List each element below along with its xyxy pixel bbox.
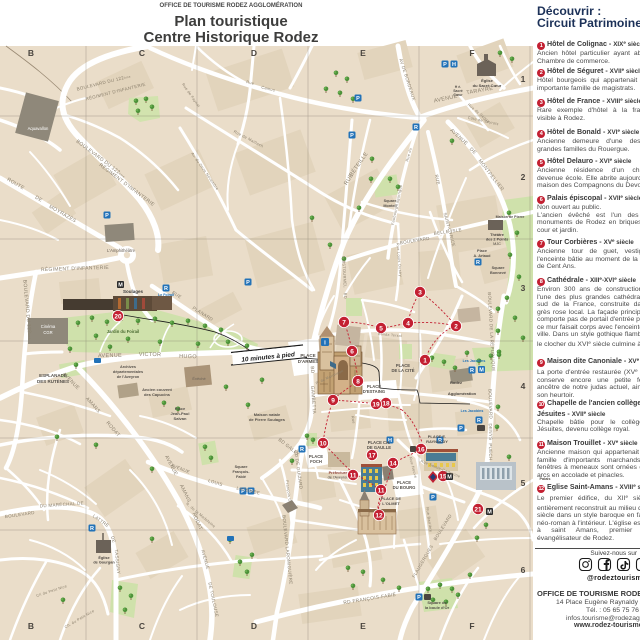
svg-text:A. Artaud: A. Artaud (474, 254, 492, 258)
svg-text:P: P (246, 280, 250, 286)
svg-text:de l'Aveyron: de l'Aveyron (117, 375, 140, 379)
svg-text:6: 6 (521, 565, 526, 575)
svg-text:Les Jacobins: Les Jacobins (461, 409, 484, 413)
svg-text:Square: Square (492, 266, 505, 270)
svg-text:3: 3 (521, 283, 526, 293)
svg-text:FOCH: FOCH (310, 459, 322, 464)
svg-text:DES RUTÈNES: DES RUTÈNES (37, 377, 69, 384)
svg-text:8: 8 (356, 378, 360, 385)
svg-text:HUGO: HUGO (179, 354, 197, 361)
svg-text:D'ESTAING: D'ESTAING (363, 389, 385, 394)
svg-text:Théâtre: Théâtre (490, 233, 504, 237)
svg-text:la boule d'Or: la boule d'Or (425, 605, 450, 610)
svg-text:L'OLMET: L'OLMET (382, 501, 400, 506)
svg-text:2: 2 (454, 323, 458, 330)
svg-text:Square: Square (384, 199, 397, 203)
svg-text:BD: BD (343, 293, 348, 299)
svg-text:Jardin du Foirail: Jardin du Foirail (107, 329, 140, 334)
svg-text:C: C (139, 48, 145, 58)
svg-text:D: D (251, 621, 257, 631)
svg-text:François-: François- (232, 470, 250, 474)
svg-text:R: R (300, 447, 304, 453)
svg-text:RAYNALDY: RAYNALDY (426, 439, 448, 444)
svg-text:Maison de Pierre: Maison de Pierre (496, 215, 525, 219)
svg-text:9: 9 (331, 397, 335, 404)
svg-text:DU BOURG: DU BOURG (393, 485, 416, 490)
svg-text:15: 15 (439, 473, 447, 480)
svg-text:20: 20 (114, 313, 122, 320)
svg-text:17: 17 (368, 452, 376, 459)
svg-text:Monteil: Monteil (383, 204, 396, 208)
svg-text:C: C (139, 621, 145, 631)
svg-text:19: 19 (372, 401, 380, 408)
svg-text:16: 16 (417, 446, 425, 453)
svg-text:VICTOR: VICTOR (139, 352, 162, 358)
svg-text:PLACE: PLACE (300, 353, 315, 358)
svg-text:BD: BD (309, 366, 316, 374)
svg-text:11: 11 (350, 472, 357, 479)
svg-text:4: 4 (406, 320, 410, 327)
svg-text:Soulages: Soulages (123, 289, 144, 294)
svg-text:P: P (443, 62, 447, 68)
svg-text:M: M (487, 510, 492, 516)
svg-text:R: R (414, 125, 418, 131)
svg-text:10: 10 (319, 440, 327, 447)
svg-text:Place: Place (477, 249, 487, 253)
svg-text:11: 11 (378, 487, 385, 494)
svg-text:Évêché: Évêché (192, 376, 206, 381)
svg-text:D'ARMES: D'ARMES (298, 359, 319, 364)
svg-text:départementales: départementales (113, 370, 143, 374)
svg-text:CGR: CGR (43, 330, 52, 335)
svg-text:Agglomération: Agglomération (448, 391, 477, 396)
svg-text:Cinéma: Cinéma (41, 324, 56, 329)
svg-text:Archives: Archives (120, 365, 136, 369)
svg-text:R: R (90, 526, 94, 532)
svg-text:7: 7 (342, 319, 346, 326)
svg-text:D: D (251, 48, 257, 58)
svg-text:P: P (431, 495, 435, 501)
svg-text:F: F (469, 48, 474, 58)
svg-text:1: 1 (423, 357, 427, 364)
svg-text:DE LA CITÉ: DE LA CITÉ (391, 368, 414, 373)
svg-text:Fabié: Fabié (236, 475, 246, 479)
svg-text:Les Jacobins: Les Jacobins (463, 359, 486, 363)
svg-text:M: M (118, 283, 123, 289)
svg-text:P: P (417, 595, 421, 601)
svg-text:H: H (452, 62, 456, 68)
svg-text:L'Amphithéâtre: L'Amphithéâtre (107, 248, 136, 253)
svg-text:PUECH: PUECH (488, 443, 494, 460)
svg-text:M: M (479, 368, 484, 374)
svg-text:Cœur: Cœur (453, 93, 463, 97)
svg-text:12: 12 (375, 512, 383, 519)
svg-text:1: 1 (521, 74, 526, 84)
svg-text:18: 18 (382, 400, 390, 407)
svg-text:des Capucins: des Capucins (144, 392, 171, 397)
svg-text:14: 14 (389, 460, 397, 467)
svg-text:MJC: MJC (493, 242, 501, 246)
svg-text:Rodez: Rodez (450, 380, 462, 385)
svg-text:DENYS: DENYS (488, 423, 494, 440)
svg-text:des 2 Points: des 2 Points (486, 238, 508, 242)
svg-text:4: 4 (521, 381, 526, 391)
svg-text:21: 21 (474, 506, 482, 513)
svg-text:Église: Église (98, 555, 109, 560)
svg-text:ESPLANADE: ESPLANADE (39, 373, 67, 378)
svg-text:P: P (105, 213, 109, 219)
svg-text:B: B (28, 621, 34, 631)
svg-text:de Gourgan: de Gourgan (93, 561, 115, 565)
svg-text:Le Foirail: Le Foirail (158, 293, 174, 297)
svg-text:2: 2 (521, 172, 526, 182)
svg-text:B: B (28, 48, 34, 58)
svg-text:Square: Square (235, 465, 248, 469)
svg-text:P: P (350, 133, 354, 139)
svg-text:R: R (477, 418, 481, 424)
svg-text:Bonnevé: Bonnevé (490, 271, 506, 275)
svg-text:R: R (164, 286, 168, 292)
svg-text:Salvan: Salvan (174, 416, 187, 421)
svg-text:E: E (360, 621, 366, 631)
svg-text:Préfecture: Préfecture (329, 471, 348, 475)
svg-text:BOULEVARD: BOULEVARD (487, 389, 493, 420)
svg-text:6: 6 (350, 348, 354, 355)
svg-text:5: 5 (521, 478, 526, 488)
svg-text:P: P (356, 96, 360, 102)
svg-text:3: 3 (418, 289, 422, 296)
svg-text:E: E (360, 48, 366, 58)
svg-text:de Pierre Soulages: de Pierre Soulages (249, 417, 286, 422)
svg-text:F: F (469, 621, 474, 631)
svg-text:Aquavallon: Aquavallon (28, 126, 49, 131)
svg-text:de l'Aveyron: de l'Aveyron (328, 476, 349, 480)
svg-text:DE GAULLE: DE GAULLE (367, 445, 391, 450)
svg-text:P: P (459, 426, 463, 432)
svg-text:R: R (476, 260, 480, 266)
svg-text:AVENUE: AVENUE (98, 353, 122, 359)
svg-text:R: R (470, 368, 474, 374)
